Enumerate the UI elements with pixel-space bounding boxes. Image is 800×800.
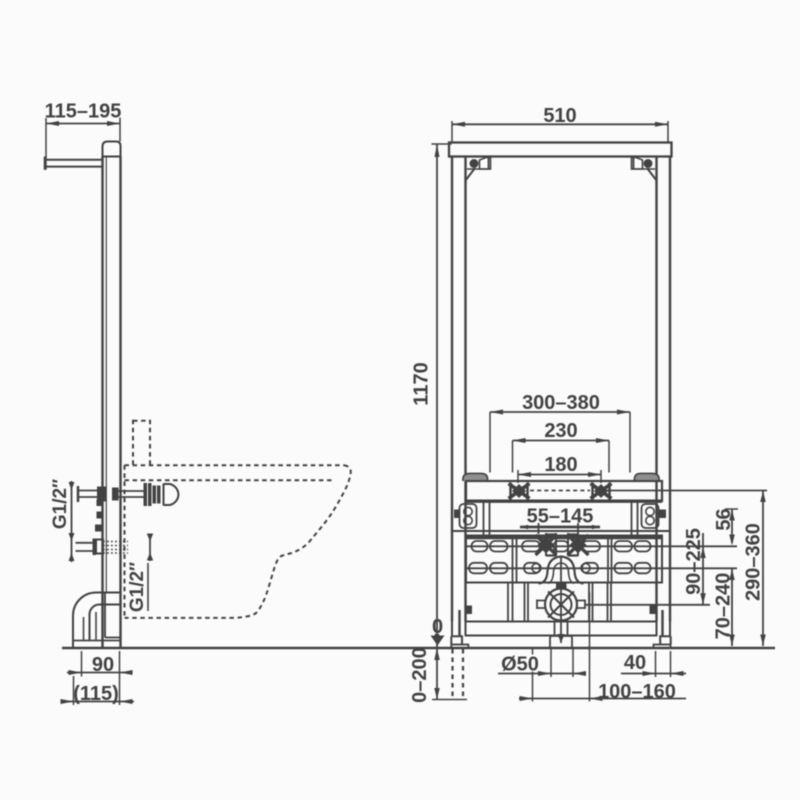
svg-text:230: 230 [544, 420, 577, 442]
svg-text:115–195: 115–195 [45, 101, 122, 123]
svg-text:40: 40 [624, 652, 646, 674]
svg-text:0: 0 [432, 616, 443, 638]
svg-text:1170: 1170 [411, 362, 433, 405]
svg-text:G1/2″: G1/2″ [127, 562, 148, 612]
svg-text:55–145: 55–145 [527, 506, 594, 528]
svg-text:0–200: 0–200 [409, 647, 431, 703]
svg-text:100–160: 100–160 [598, 681, 676, 703]
svg-text:G1/2″: G1/2″ [50, 479, 71, 529]
svg-text:300–380: 300–380 [522, 392, 600, 414]
svg-text:90–225: 90–225 [683, 528, 705, 595]
svg-text:180: 180 [544, 454, 577, 476]
svg-text:290–360: 290–360 [743, 523, 765, 601]
